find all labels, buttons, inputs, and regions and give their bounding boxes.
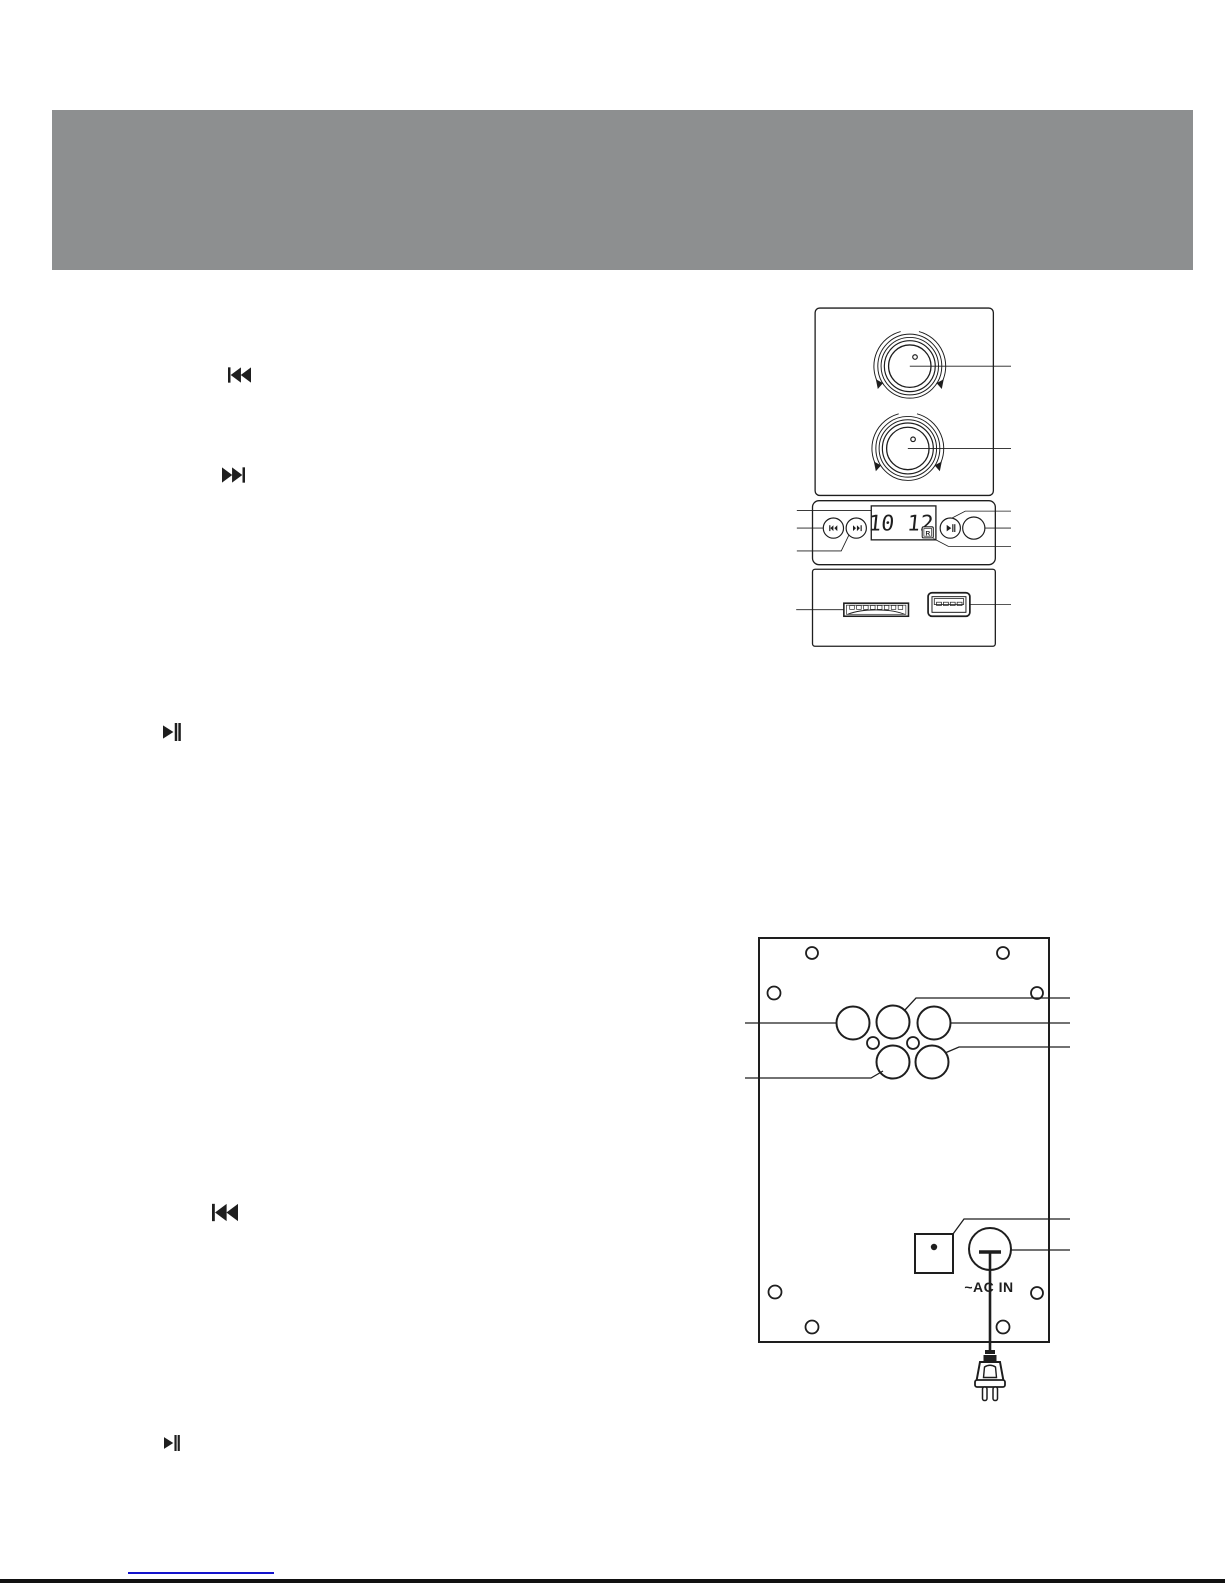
ir-sensor-icon: R — [922, 527, 933, 538]
ac-in-label: ~AC IN — [964, 1279, 1013, 1295]
power-plug — [975, 1350, 1005, 1401]
rear-small-hole — [907, 1037, 919, 1049]
skip-back-button — [823, 518, 843, 538]
screw-hole — [1031, 987, 1043, 999]
hyperlink-underline[interactable] — [128, 1572, 274, 1574]
rear-button — [877, 1046, 910, 1079]
fuse-box — [915, 1234, 953, 1273]
rear-button — [918, 1007, 951, 1040]
display-window: 10 12 R — [867, 506, 936, 540]
screw-hole — [1031, 1287, 1043, 1299]
screw-hole — [806, 947, 818, 959]
page-bottom-edge — [0, 1579, 1225, 1583]
usb-port — [928, 593, 970, 617]
power-button — [963, 517, 985, 539]
skip-forward-icon — [222, 467, 245, 483]
front-panel-diagram: 10 12 R — [720, 295, 1080, 850]
screw-hole — [997, 947, 1009, 959]
sd-card-slot — [844, 603, 909, 616]
screw-hole — [769, 1286, 782, 1299]
rear-button — [837, 1007, 870, 1040]
rear-small-hole — [867, 1037, 879, 1049]
back-panel-diagram: ~AC IN — [720, 925, 1080, 1405]
header-band — [52, 110, 1193, 270]
play-pause-button — [940, 518, 960, 538]
ir-sensor-glyph: R — [925, 531, 930, 538]
play-pause-icon — [164, 1434, 180, 1452]
skip-back-icon — [212, 1203, 238, 1222]
manual-page: 10 12 R — [0, 0, 1225, 1585]
play-pause-icon — [163, 722, 181, 742]
screw-hole — [768, 987, 781, 1000]
screw-hole — [997, 1321, 1010, 1334]
screw-hole — [806, 1321, 819, 1334]
rear-button — [916, 1046, 949, 1079]
skip-back-icon — [228, 367, 251, 383]
